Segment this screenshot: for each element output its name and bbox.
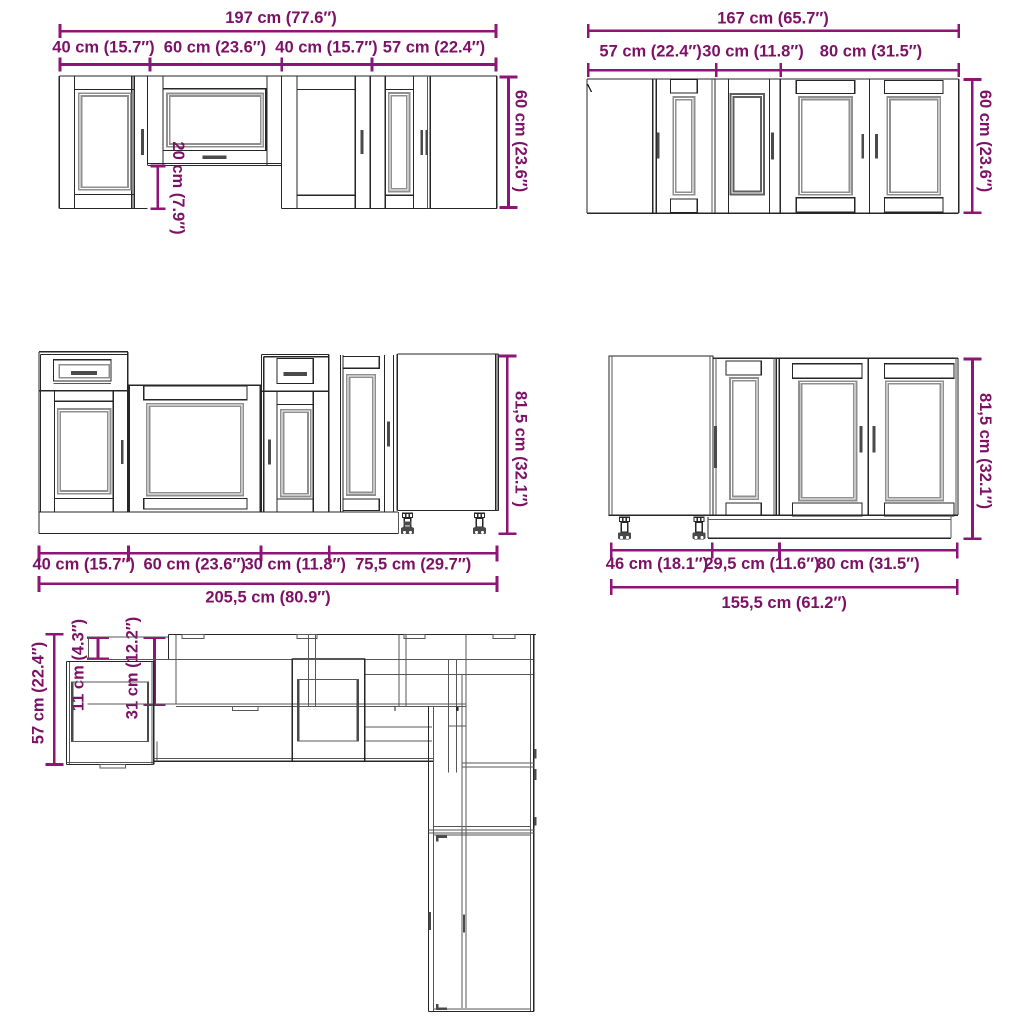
svg-text:29,5 cm (11.6″): 29,5 cm (11.6″) [704,555,819,573]
svg-text:81,5 cm (32.1″): 81,5 cm (32.1″) [512,391,530,507]
svg-text:197 cm (77.6″): 197 cm (77.6″) [225,9,337,27]
svg-text:155,5 cm (61.2″): 155,5 cm (61.2″) [722,594,847,612]
svg-text:57 cm (22.4″): 57 cm (22.4″) [383,39,485,57]
svg-text:20 cm (7.9″): 20 cm (7.9″) [169,141,187,234]
svg-text:75,5 cm (29.7″): 75,5 cm (29.7″) [355,556,471,574]
svg-text:60 cm (23.6″): 60 cm (23.6″) [144,556,246,574]
svg-text:40 cm (15.7″): 40 cm (15.7″) [33,556,135,574]
svg-text:80 cm (31.5″): 80 cm (31.5″) [820,43,922,61]
svg-text:57 cm (22.4″): 57 cm (22.4″) [30,642,48,744]
svg-text:30 cm (11.8″): 30 cm (11.8″) [244,556,345,574]
svg-text:60 cm (23.6″): 60 cm (23.6″) [976,90,994,192]
svg-text:30 cm (11.8″): 30 cm (11.8″) [702,43,803,61]
svg-text:80 cm (31.5″): 80 cm (31.5″) [817,555,919,573]
svg-text:81,5 cm (32.1″): 81,5 cm (32.1″) [976,393,994,509]
svg-text:60 cm (23.6″): 60 cm (23.6″) [164,39,266,57]
svg-text:205,5 cm (80.9″): 205,5 cm (80.9″) [205,589,330,607]
svg-text:46 cm (18.1″): 46 cm (18.1″) [606,555,708,573]
svg-text:57 cm (22.4″): 57 cm (22.4″) [599,43,701,61]
svg-text:40 cm (15.7″): 40 cm (15.7″) [275,39,377,57]
svg-text:40 cm (15.7″): 40 cm (15.7″) [52,39,154,57]
svg-text:60 cm (23.6″): 60 cm (23.6″) [512,90,530,192]
svg-text:167 cm (65.7″): 167 cm (65.7″) [717,10,829,28]
